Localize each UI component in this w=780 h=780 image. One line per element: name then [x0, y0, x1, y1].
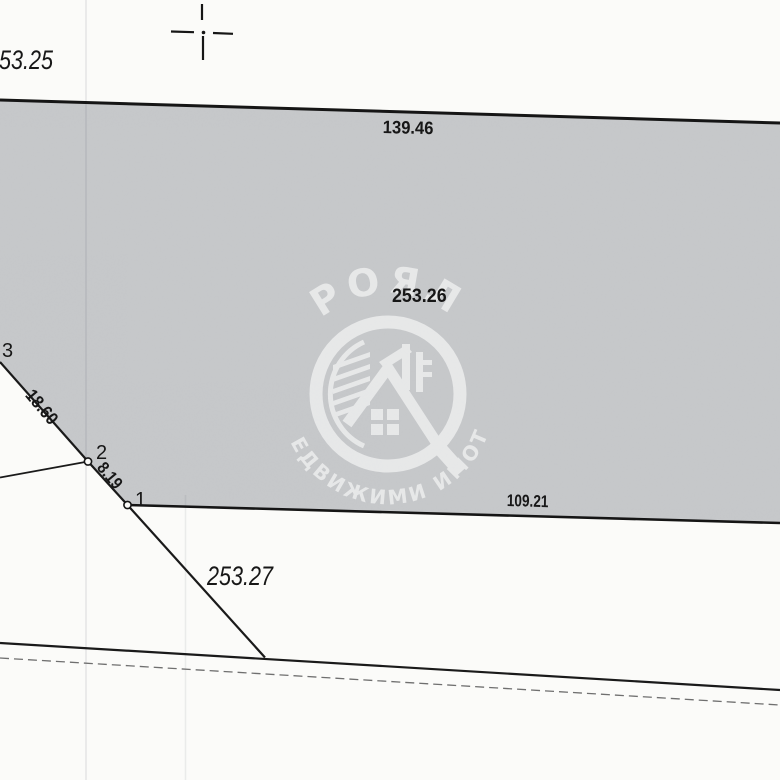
parcel-label-lower: 253.27 — [207, 563, 273, 590]
point-2-label: 2 — [96, 443, 107, 463]
house-building-sill-top — [423, 360, 432, 365]
point-2-marker — [84, 458, 91, 465]
point-3-label: 3 — [2, 341, 13, 361]
house-building-bar — [416, 352, 423, 392]
road-edge-line-dashed — [0, 658, 780, 705]
road-edge-line — [0, 643, 780, 690]
survey-cross-icon — [171, 4, 233, 60]
dimension-label-bottom-side: 109.21 — [507, 492, 549, 510]
house-building-sill-bottom — [423, 372, 432, 377]
dimension-label-top-side: 139.46 — [383, 118, 434, 137]
parcel-label-main: 253.26 — [392, 287, 447, 306]
house-chimney-bar — [402, 344, 410, 390]
point-1-marker — [124, 501, 131, 508]
cadastral-sketch-page: РОЯЛ НЕДВИЖИМИ ИМОТИ — [0, 0, 780, 780]
point-1-label: 1 — [135, 490, 146, 510]
line-from-point2-west — [0, 462, 88, 478]
parcel-label-upper-left: 253.25 — [0, 47, 53, 74]
